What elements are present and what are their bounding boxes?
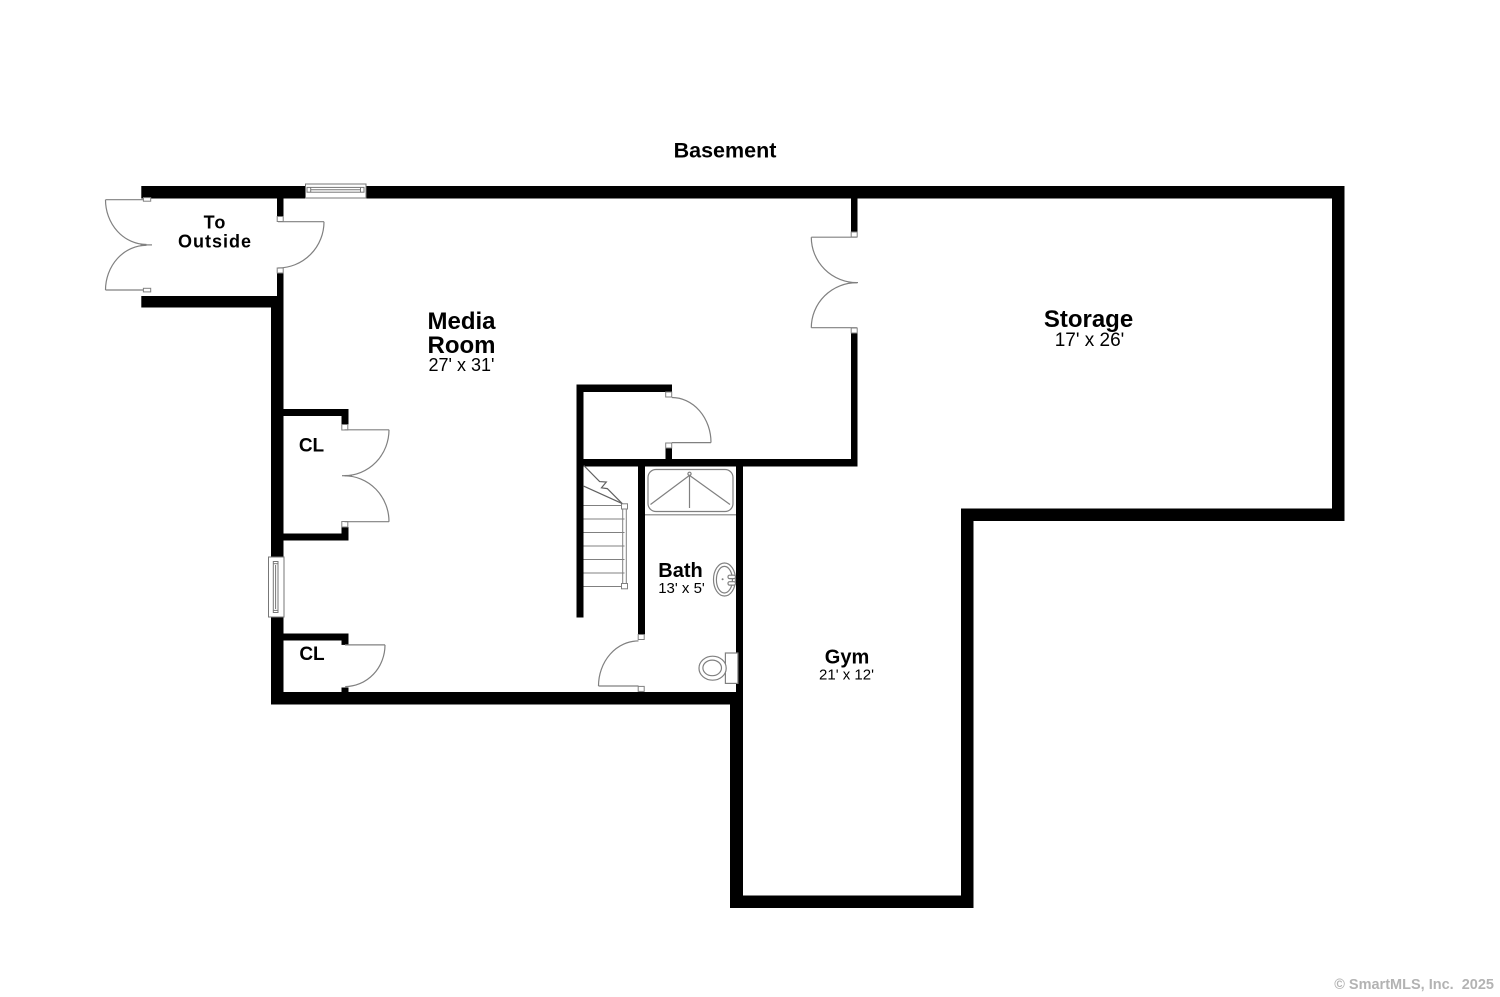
svg-text:Bath: Bath bbox=[658, 560, 702, 582]
svg-text:Basement: Basement bbox=[674, 139, 777, 163]
svg-text:CL: CL bbox=[299, 644, 325, 665]
svg-text:Gym: Gym bbox=[825, 646, 869, 668]
svg-text:© SmartMLS, Inc. 2025: © SmartMLS, Inc. 2025 bbox=[1334, 977, 1494, 993]
svg-text:13' x 5': 13' x 5' bbox=[658, 580, 705, 597]
svg-text:Media: Media bbox=[427, 308, 496, 335]
svg-text:To: To bbox=[204, 212, 227, 232]
svg-text:Outside: Outside bbox=[178, 231, 252, 251]
svg-text:21' x 12': 21' x 12' bbox=[819, 666, 874, 683]
svg-text:17' x 26': 17' x 26' bbox=[1055, 330, 1125, 351]
svg-text:CL: CL bbox=[299, 435, 325, 456]
svg-text:27' x 31': 27' x 31' bbox=[429, 355, 495, 375]
